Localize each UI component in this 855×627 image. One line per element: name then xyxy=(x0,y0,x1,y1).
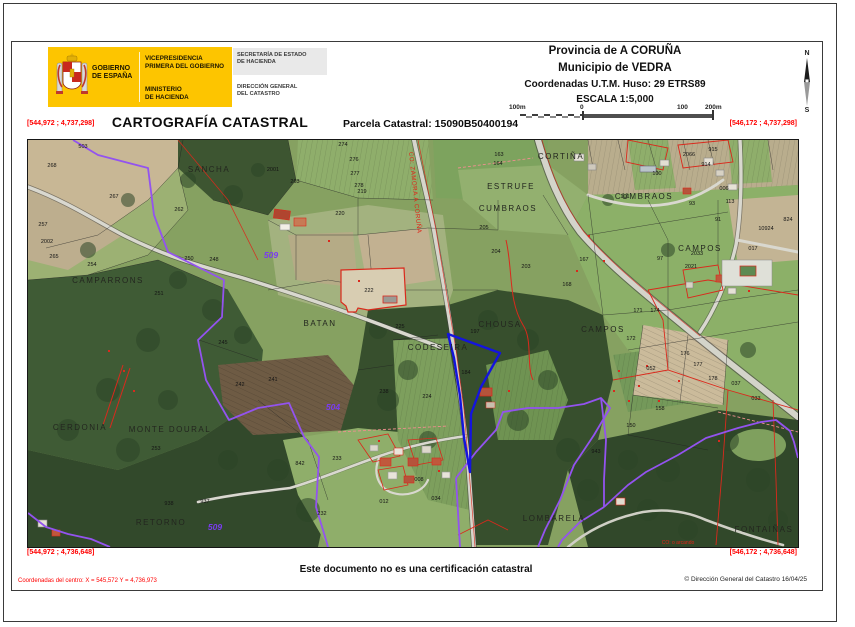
map-label: CAMPARRONS xyxy=(72,276,144,285)
map-label: CO: o arcando xyxy=(662,540,695,546)
map-label: 219 xyxy=(357,189,366,195)
map-label: 052 xyxy=(646,366,655,372)
map-label: 238 xyxy=(379,389,388,395)
disclaimer-text: Este documento no es una certificación c… xyxy=(11,564,821,575)
corner-coord-bottom-left: [544,972 ; 4,736,648] xyxy=(27,549,94,556)
map-label: RETORNO xyxy=(136,518,186,527)
compass-needle-icon xyxy=(802,58,812,106)
map-label: 012 xyxy=(379,499,388,505)
map-label: 017 xyxy=(748,246,757,252)
map-label: 224 xyxy=(422,394,431,400)
vicepresidencia-text: VICEPRESIDENCIA PRIMERA DEL GOBIERNO xyxy=(145,55,231,70)
map-label: BATAN xyxy=(304,319,337,328)
map-label: LOMBARELA xyxy=(523,514,585,523)
compass-n-label: N xyxy=(797,50,817,57)
map-label: 504 xyxy=(326,402,340,412)
vice-line1: VICEPRESIDENCIA xyxy=(145,55,231,63)
map-label: 509 xyxy=(208,522,222,532)
map-label: 164 xyxy=(493,161,502,167)
gobierno-line1: GOBIERNO xyxy=(92,65,132,73)
map-label: 2002 xyxy=(41,239,53,245)
map-label: 184 xyxy=(461,370,470,376)
compass-s-label: S xyxy=(797,107,817,114)
map-label: 274 xyxy=(338,142,347,148)
map-label: 254 xyxy=(87,262,96,268)
map-label: 034 xyxy=(431,496,440,502)
map-label: 174 xyxy=(650,308,659,314)
gobierno-line2: DE ESPAÑA xyxy=(92,73,132,81)
map-label: 943 xyxy=(591,449,600,455)
scale-label-100m-left: 100m xyxy=(509,104,526,111)
map-label: 232 xyxy=(317,511,326,517)
map-label: 177 xyxy=(693,362,702,368)
map-label: 914 xyxy=(701,162,710,168)
ministerio-text: MINISTERIO DE HACIENDA xyxy=(145,86,189,101)
map-label: 242 xyxy=(235,382,244,388)
map-label: 93 xyxy=(689,201,695,207)
dir-line1: DIRECCIÓN GENERAL xyxy=(237,84,323,91)
map-label: 033 xyxy=(751,396,760,402)
map-label: 222 xyxy=(364,288,373,294)
map-label: 2021 xyxy=(685,264,697,270)
map-label: 205 xyxy=(479,225,488,231)
cadastral-map-canvas: CORTIÑASANCHAESTRUFECUMBRAOSCUMBRAOSCAMP… xyxy=(28,140,798,547)
map-label: 248 xyxy=(209,257,218,263)
spain-coat-of-arms-icon xyxy=(56,51,88,103)
map-label: 150 xyxy=(626,423,635,429)
map-label: SANCHA xyxy=(188,165,230,174)
map-label: 251 xyxy=(154,291,163,297)
map-label: 268 xyxy=(47,163,56,169)
min-line2: DE HACIENDA xyxy=(145,94,189,102)
scale-bar-tick-zero xyxy=(582,111,584,120)
map-label: 100 xyxy=(652,171,661,177)
corner-coord-bottom-right: [546,172 ; 4,736,648] xyxy=(677,549,797,556)
map-label: 163 xyxy=(494,152,503,158)
parcel-reference: Parcela Catastral: 15090B50400194 xyxy=(343,118,518,130)
map-label: 167 xyxy=(579,257,588,263)
scale-label-100: 100 xyxy=(677,104,688,111)
scale-bar-solid xyxy=(583,114,713,118)
vice-line2: PRIMERA DEL GOBIERNO xyxy=(145,63,231,71)
secretaria-box: SECRETARÍA DE ESTADO DE HACIENDA xyxy=(233,48,327,75)
page-title: CARTOGRAFÍA CATASTRAL xyxy=(110,114,310,130)
map-label: 938 xyxy=(164,501,173,507)
map-label: 171 xyxy=(633,308,642,314)
map-label: 824 xyxy=(783,217,792,223)
cadastral-map: CORTIÑASANCHAESTRUFECUMBRAOSCUMBRAOSCAMP… xyxy=(27,139,799,548)
map-label: 225 xyxy=(395,324,404,330)
corner-coord-top-left: [544,972 ; 4,737,298] xyxy=(27,120,94,127)
map-label: 277 xyxy=(350,171,359,177)
map-label: 176 xyxy=(680,351,689,357)
map-label: ESTRUFE xyxy=(487,182,535,191)
map-label: 204 xyxy=(491,249,500,255)
provincia-label: Provincia de A CORUÑA xyxy=(465,45,765,57)
scale-bar-tick-end xyxy=(712,110,714,120)
corner-coord-top-right: [546,172 ; 4,737,298] xyxy=(677,120,797,127)
map-label: 509 xyxy=(264,250,278,260)
map-label: 915 xyxy=(708,147,717,153)
map-label: 276 xyxy=(349,157,358,163)
map-label: 265 xyxy=(49,254,58,260)
map-metadata-header: Provincia de A CORUÑA Municipio de VEDRA… xyxy=(465,45,765,105)
cadastral-document-page: GOBIERNO DE ESPAÑA VICEPRESIDENCIA PRIME… xyxy=(0,0,855,627)
municipio-label: Municipio de VEDRA xyxy=(465,62,765,74)
map-label: 2066 xyxy=(683,152,695,158)
map-label: 158 xyxy=(655,406,664,412)
sec-line1: SECRETARÍA DE ESTADO xyxy=(237,52,323,59)
map-label: CODESEIRA xyxy=(408,343,469,352)
map-label: 262 xyxy=(174,207,183,213)
map-label: 937 xyxy=(200,499,209,505)
map-label: 220 xyxy=(335,211,344,217)
map-label: 113 xyxy=(726,199,735,205)
map-label: 842 xyxy=(295,461,304,467)
north-arrow: N S xyxy=(797,50,817,130)
direccion-box: DIRECCIÓN GENERAL DEL CATASTRO xyxy=(233,80,327,107)
map-label: 178 xyxy=(708,376,717,382)
sec-line2: DE HACIENDA xyxy=(237,59,323,66)
map-label: 250 xyxy=(184,256,193,262)
map-label: 037 xyxy=(731,381,740,387)
map-label: 197 xyxy=(470,329,479,335)
min-line1: MINISTERIO xyxy=(145,86,189,94)
coordenadas-label: Coordenadas U.T.M. Huso: 29 ETRS89 xyxy=(465,79,765,90)
map-label: 91 xyxy=(715,217,721,223)
map-label: 97 xyxy=(657,256,663,262)
gobierno-text: GOBIERNO DE ESPAÑA xyxy=(92,65,132,81)
center-coordinates-text: Coordenadas del centro: X = 545,572 Y = … xyxy=(18,578,157,584)
map-label: 203 xyxy=(521,264,530,270)
copyright-text: © Dirección General del Catastro 16/04/2… xyxy=(560,576,807,583)
map-label: FONTAIÑAS xyxy=(735,525,794,534)
map-label: CAMPOS xyxy=(581,325,625,334)
map-label: CHOUSA xyxy=(478,320,521,329)
map-label: CUMBRAOS xyxy=(479,204,537,213)
map-label: 257 xyxy=(38,222,47,228)
map-label: 172 xyxy=(626,336,635,342)
map-label: 245 xyxy=(218,340,227,346)
map-label: 263 xyxy=(290,179,299,185)
scale-label-zero: 0 xyxy=(580,104,584,111)
map-label: CERDONIA xyxy=(53,423,107,432)
map-label: 2001 xyxy=(267,167,279,173)
map-label: MONTE DOURAL xyxy=(129,425,211,434)
map-label: CORTIÑA xyxy=(538,152,584,161)
map-label: 241 xyxy=(268,377,277,383)
map-label: 503 xyxy=(78,144,87,150)
map-label: 008 xyxy=(414,477,423,483)
logo-divider xyxy=(139,52,140,102)
map-label: 267 xyxy=(109,194,118,200)
map-label: 2033 xyxy=(691,251,703,257)
map-label: 006 xyxy=(719,186,728,192)
map-label: 233 xyxy=(332,456,341,462)
map-label: 168 xyxy=(562,282,571,288)
map-label: 10924 xyxy=(758,226,773,232)
scale-bar-dashed-bottom xyxy=(520,116,583,118)
dir-line2: DEL CATASTRO xyxy=(237,91,323,98)
map-label: 253 xyxy=(151,446,160,452)
map-label: 101 xyxy=(620,194,629,200)
